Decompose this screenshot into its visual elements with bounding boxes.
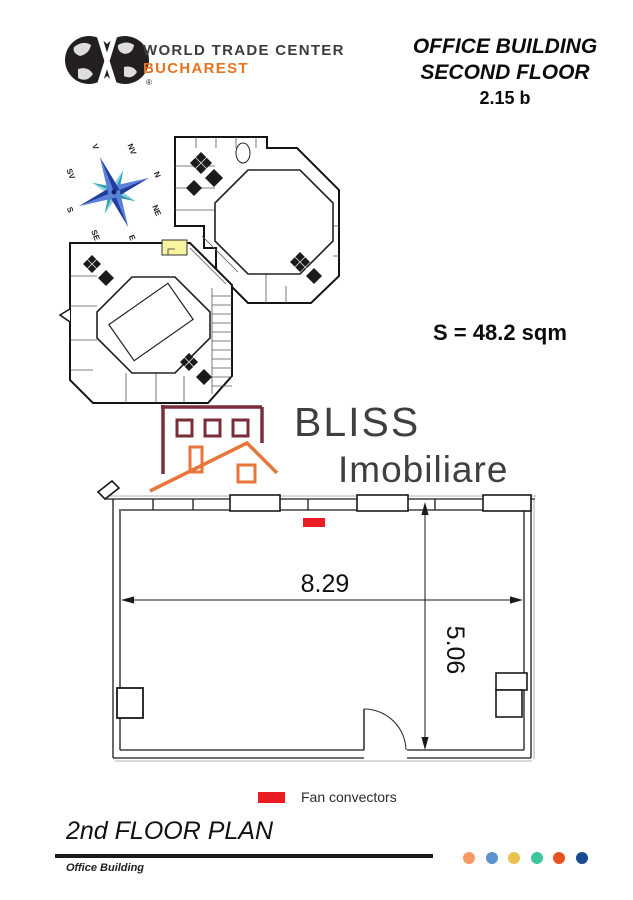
legend-fan-swatch	[258, 792, 285, 803]
wtc-globes-icon	[62, 33, 154, 93]
brand-color-dots	[463, 852, 588, 864]
brand-dot	[486, 852, 498, 864]
building-label: Office Building	[66, 862, 144, 874]
brand-dot	[576, 852, 588, 864]
unit-code: 2.15 b	[385, 86, 625, 110]
brand-dot	[508, 852, 520, 864]
brand-dot	[531, 852, 543, 864]
title-line-1: OFFICE BUILDING	[385, 34, 625, 60]
title-line-2: SECOND FLOOR	[385, 60, 625, 86]
registered-mark: ®	[146, 78, 152, 87]
brand-dot	[553, 852, 565, 864]
area-label: S = 48.2 sqm	[433, 320, 567, 346]
door	[364, 709, 406, 750]
dimension-width-label: 8.29	[301, 570, 350, 598]
dimension-depth: 5.06	[421, 502, 469, 750]
page-title: OFFICE BUILDING SECOND FLOOR 2.15 b	[385, 34, 625, 110]
footer-divider	[55, 854, 433, 858]
dimension-width: 8.29	[121, 570, 523, 604]
logo-wtc-label: WORLD TRADE CENTER	[143, 42, 345, 59]
floor-plan-sheet: WORLD TRADE CENTER BUCHAREST ® OFFICE BU…	[0, 0, 633, 900]
columns	[117, 673, 527, 718]
floor-plan-title: 2nd FLOOR PLAN	[66, 817, 273, 846]
watermark-brand-name: BLISS	[294, 399, 420, 446]
window-frames	[230, 495, 531, 511]
legend-fan-label: Fan convectors	[301, 789, 397, 805]
highlighted-unit-room	[162, 240, 187, 255]
fan-convector-marker	[303, 518, 325, 527]
dimension-depth-label: 5.06	[441, 626, 469, 675]
overview-floor-plan	[56, 126, 348, 414]
room-plan: 8.29 5.06	[95, 478, 545, 783]
brand-dot	[463, 852, 475, 864]
logo-city-label: BUCHAREST	[143, 60, 249, 77]
